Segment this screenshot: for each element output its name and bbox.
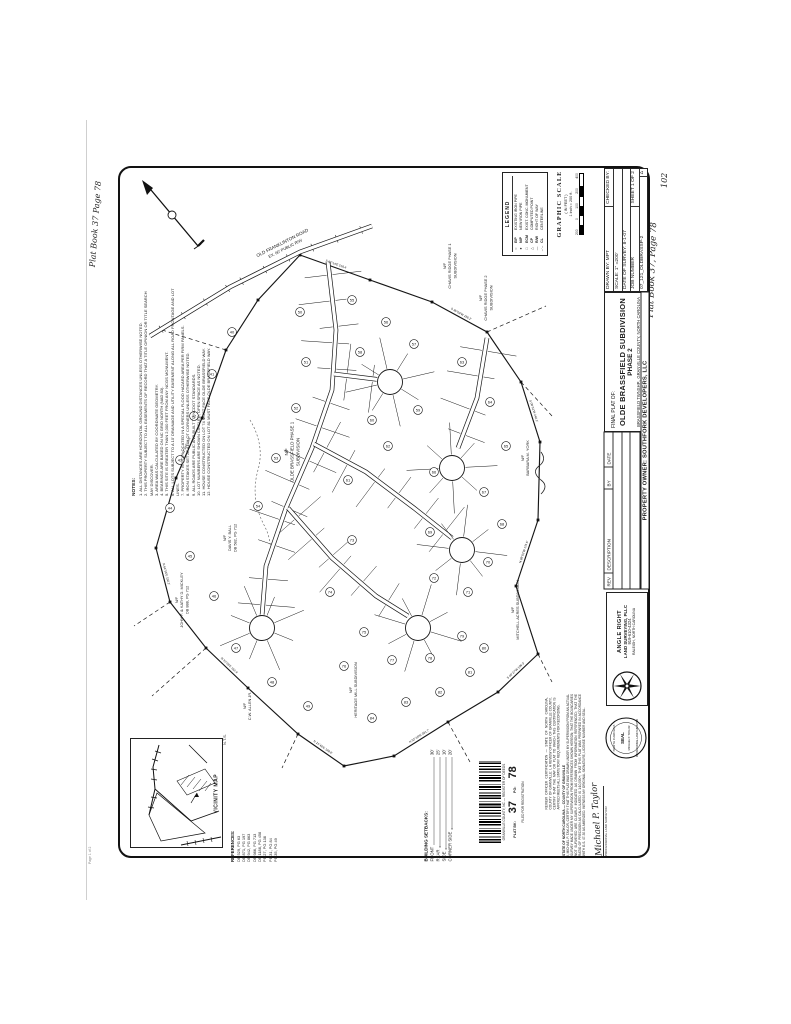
certificate-text: I, MICHAEL P. TAYLOR, CERTIFY THAT THIS … <box>566 694 586 856</box>
svg-text:82: 82 <box>438 690 443 695</box>
vicinity-map-label: VICINITY MAP <box>214 762 225 814</box>
svg-text:DB 888, PG 712: DB 888, PG 712 <box>184 586 189 614</box>
map-bearing-labels: S 62°14'E 218.4'S 35°08'W 186.2'S 08°51'… <box>162 259 540 756</box>
map-adjoiner-label: N/FCHAVIS RIDGE PHASE 1SUBDIVISION <box>442 243 457 288</box>
svg-text:55: 55 <box>350 298 355 303</box>
svg-text:50: 50 <box>298 310 303 315</box>
map-adjoiner-label: N/FJOHN F. & KATHY D. MICKLEYDB 888, PG … <box>174 572 189 628</box>
svg-text:84: 84 <box>370 716 375 721</box>
svg-text:76: 76 <box>342 664 347 669</box>
svg-text:56: 56 <box>384 320 389 325</box>
svg-text:53: 53 <box>274 456 279 461</box>
seal-state: NORTH CAROLINA <box>612 725 616 752</box>
drawn-by: DRAWN BY: MPT <box>606 248 613 291</box>
svg-text:N 33°28'E 162.4': N 33°28'E 162.4' <box>220 656 239 675</box>
recording-book-page: PLAT BK:37 PG:78 <box>507 748 521 856</box>
svg-text:46: 46 <box>212 594 217 599</box>
handwritten-page-number: 102 <box>660 164 676 188</box>
svg-text:74: 74 <box>328 590 333 595</box>
recording-stamp: GRANVILLE COUNTY, NC — REGISTER OF DEEDS… <box>478 748 546 856</box>
svg-text:67: 67 <box>482 490 487 495</box>
by-col: BY <box>605 467 613 489</box>
map-adjoiner-label: N/FHERITAGE MILL SUBDIVISION <box>348 662 358 718</box>
svg-text:44: 44 <box>168 506 173 511</box>
svg-text:63: 63 <box>460 360 465 365</box>
vicinity-map-sketch <box>131 739 222 847</box>
svg-text:66: 66 <box>432 470 437 475</box>
reference-item: PB 35, PG 49 <box>273 766 278 862</box>
scale-value: SCALE: 1" =200' <box>615 250 622 291</box>
svg-text:45: 45 <box>188 554 193 559</box>
plat-notes: NOTES: 1. ALL DISTANCES ARE HORIZONTAL G… <box>132 282 218 496</box>
north-arrow <box>142 180 204 249</box>
property-owner-strip: PROPERTY OWNER: SOUTHFORK DEVELOPERS, LL… <box>641 292 650 590</box>
vicinity-map-box <box>130 738 223 848</box>
plat-page-number: 78 <box>507 766 521 778</box>
svg-text:SUBDIVISION: SUBDIVISION <box>452 253 457 278</box>
graphic-scale-ratio: 1 inch = 200 ft. <box>569 168 573 240</box>
svg-text:62: 62 <box>386 444 391 449</box>
svg-text:DB 582, PG 712: DB 582, PG 712 <box>232 524 237 552</box>
svg-text:58: 58 <box>358 350 363 355</box>
map-adjoiner-label: N/FOLDE BRASSFIELD PHASE 1SUBDIVISION <box>284 421 300 482</box>
date-col: DATE <box>605 433 613 467</box>
description-col: DESCRIPTION <box>605 489 613 573</box>
svg-text:47: 47 <box>234 646 239 651</box>
svg-text:S 46°27'W 198.3': S 46°27'W 198.3' <box>506 661 526 680</box>
job-number-label: JOB NUMBER <box>631 255 638 291</box>
graphic-scale: GRAPHIC SCALE ( IN FEET ) 1 inch = 200 f… <box>556 168 608 240</box>
map-adjoiner-label: N/FBARBARA M. YORK <box>520 440 530 476</box>
svg-text:61: 61 <box>346 478 351 483</box>
note-item: 12. HOUSE CONSTRUCTED ON LOT 81 MUST FAC… <box>206 282 211 496</box>
final-plat-label: FINAL PLAT OF: <box>611 391 617 428</box>
scanned-plat-page: { "page": { "handwritten_top_left": "Pla… <box>0 0 791 1024</box>
legend-entry: –·–CLCENTERLINE <box>540 176 545 252</box>
seal-title: PROFESSIONAL LAND SURVEYOR <box>636 719 639 757</box>
job-number: 07_121_OLDBRASSP-2 <box>640 234 647 291</box>
review-officer-certificate: REVIEW OFFICER CERTIFICATION — STATE OF … <box>545 698 562 810</box>
building-setbacks: BUILDING SETBACKS: FRONT30' REAR25' SIDE… <box>424 750 457 862</box>
map-adjoiner-label: N/FCHAVIS RIDGE PHASE 2SUBDIVISION <box>478 275 493 320</box>
recording-barcode <box>479 761 501 843</box>
svg-text:71: 71 <box>466 590 471 595</box>
setback-row: CORNER SIDE20' <box>448 750 454 862</box>
svg-text:SUBDIVISION: SUBDIVISION <box>488 285 493 310</box>
svg-text:MITCHELL ACRES SUBDIVISION: MITCHELL ACRES SUBDIVISION <box>515 580 520 640</box>
revision-empty-row <box>622 433 631 589</box>
revision-table: REV DESCRIPTION BY DATE <box>604 432 641 590</box>
revision-empty-row <box>614 433 623 589</box>
svg-text:73: 73 <box>350 538 355 543</box>
revision-triangle: Δ <box>639 169 648 177</box>
subdivision-title: OLDE BRASSFIELD SUBDIVISION <box>618 298 627 426</box>
references-list: REFERENCES: DB 529, PG 63 DB 871, PG 197… <box>230 766 284 862</box>
svg-text:83: 83 <box>404 700 409 705</box>
graphic-scale-units: ( IN FEET ) <box>564 168 568 240</box>
subdivision-phase: PHASE 2 <box>627 348 634 375</box>
recording-county: GRANVILLE COUNTY, NC — REGISTER OF DEEDS <box>502 748 506 856</box>
handwritten-plat-book-right: Plat Book 37, Page 78 <box>646 192 674 319</box>
svg-text:SUBDIVISION: SUBDIVISION <box>295 438 300 466</box>
map-adjoiner-label: N/FDAVIS Y. BALLDB 582, PG 712 <box>222 524 237 552</box>
svg-text:52: 52 <box>294 406 299 411</box>
rev-col: REV <box>605 573 613 589</box>
legend-heading: LEGEND <box>505 176 513 252</box>
svg-text:OLDE BRASSFIELD PHASE 1: OLDE BRASSFIELD PHASE 1 <box>290 421 295 482</box>
svg-text:51: 51 <box>304 360 309 365</box>
title-block-info-table: DRAWN BY: MPTCHECKED BY: SCALE: 1" =200'… <box>604 168 648 292</box>
svg-text:C.W. ALLEN JR.: C.W. ALLEN JR. <box>247 692 252 721</box>
date-of-survey: DATE OF SURVEY: 8-1-07 <box>623 228 630 291</box>
svg-text:N 21°46'E 188.9': N 21°46'E 188.9' <box>313 739 334 755</box>
svg-text:69: 69 <box>428 530 433 535</box>
svg-text:48: 48 <box>270 680 275 685</box>
handwritten-squiggle <box>535 452 545 494</box>
svg-text:68: 68 <box>500 522 505 527</box>
map-adjoiner-label: N/FMITCHELL ACRES SUBDIVISION <box>510 580 520 640</box>
svg-text:59: 59 <box>416 408 421 413</box>
svg-text:77: 77 <box>390 658 395 663</box>
recording-filed: FILED FOR REGISTRATION <box>521 748 525 856</box>
svg-text:78: 78 <box>428 656 433 661</box>
seal-name: MICHAEL P. TAYLOR <box>627 725 631 750</box>
svg-text:60: 60 <box>370 418 375 423</box>
surveyor-certificate: STATE OF NORTH CAROLINA — COUNTY OF GRAN… <box>562 694 608 856</box>
note-item: 6. ALL LOTS SUBJECT TO A 10' DRAINAGE AN… <box>170 282 181 496</box>
map-adjoiner-label: N/FC.W. ALLEN JR. <box>242 692 252 721</box>
svg-text:79: 79 <box>460 634 465 639</box>
note-item: 2. THIS PROPERTY SUBJECT TO ALL EASEMENT… <box>143 282 154 496</box>
svg-text:81: 81 <box>468 670 473 675</box>
svg-text:64: 64 <box>488 400 493 405</box>
revision-empty-row <box>631 433 640 589</box>
scan-corner-note: Page 1 of 2 <box>88 838 98 864</box>
compass-logo-icon <box>611 670 643 702</box>
vicinity-nts-label: N.T.S. <box>222 729 232 745</box>
svg-text:49: 49 <box>306 704 311 709</box>
svg-text:BARBARA M. YORK: BARBARA M. YORK <box>525 440 530 476</box>
legend-box: LEGEND ○EIPEXISTING IRON PIPE ●NIPNEW IR… <box>502 172 548 256</box>
seal-word: SEAL <box>620 732 625 744</box>
svg-text:57: 57 <box>412 342 417 347</box>
revision-table-headers: REV DESCRIPTION BY DATE <box>605 433 614 589</box>
graphic-scale-bar <box>579 173 584 235</box>
svg-text:40: 40 <box>230 330 235 335</box>
svg-text:54: 54 <box>256 504 261 509</box>
plat-book-number: 37 <box>507 801 521 813</box>
graphic-scale-title: GRAPHIC SCALE <box>556 168 563 240</box>
surveyor-seal: NORTH CAROLINA SEAL MICHAEL P. TAYLOR PR… <box>604 712 648 764</box>
surveyor-address: RALEIGH, NORTH CAROLINA <box>633 596 637 667</box>
svg-text:70: 70 <box>486 560 491 565</box>
svg-text:N/F: N/F <box>284 448 289 455</box>
svg-text:72: 72 <box>432 576 437 581</box>
svg-text:HERITAGE MILL SUBDIVISION: HERITAGE MILL SUBDIVISION <box>353 662 358 718</box>
surveyor-signature: Michael P. Taylor <box>589 782 604 856</box>
surveyor-logo-box: ANGLE RIGHT LAND SURVEYING, PLLC 919-610… <box>606 592 648 706</box>
svg-text:65: 65 <box>504 444 509 449</box>
svg-text:75: 75 <box>362 630 367 635</box>
svg-text:N 52°19'W 201.7': N 52°19'W 201.7' <box>408 728 430 744</box>
svg-text:80: 80 <box>482 646 487 651</box>
